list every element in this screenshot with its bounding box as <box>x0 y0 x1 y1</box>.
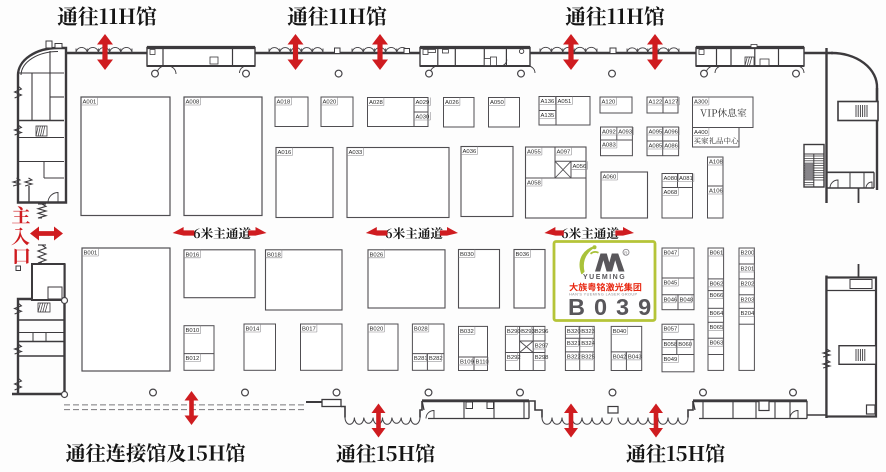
svg-text:B014: B014 <box>246 327 260 333</box>
svg-text:A127: A127 <box>665 100 679 106</box>
svg-text:B292: B292 <box>507 355 521 361</box>
svg-text:B012: B012 <box>186 356 200 362</box>
svg-text:B110: B110 <box>476 360 490 366</box>
svg-text:B057: B057 <box>664 327 678 333</box>
svg-text:A108: A108 <box>709 160 723 166</box>
svg-text:B010: B010 <box>186 328 200 334</box>
svg-text:B001: B001 <box>84 251 98 257</box>
svg-text:B063: B063 <box>710 341 724 347</box>
svg-text:B201: B201 <box>741 267 755 273</box>
svg-text:A001: A001 <box>83 100 97 106</box>
svg-text:A096: A096 <box>664 130 678 136</box>
svg-text:B028: B028 <box>414 327 428 333</box>
svg-text:B296: B296 <box>535 329 549 335</box>
svg-text:A093: A093 <box>618 130 632 136</box>
svg-text:A081: A081 <box>679 176 693 182</box>
svg-text:A092: A092 <box>602 130 616 136</box>
svg-text:B324: B324 <box>581 341 595 347</box>
svg-text:B045: B045 <box>664 281 678 287</box>
svg-text:B204: B204 <box>741 311 755 317</box>
svg-text:A300: A300 <box>694 100 708 106</box>
svg-text:A106: A106 <box>709 189 723 195</box>
svg-text:A058: A058 <box>527 181 541 187</box>
svg-text:B281: B281 <box>414 356 428 362</box>
svg-text:B323: B323 <box>581 329 595 335</box>
svg-text:A056: A056 <box>573 164 587 170</box>
svg-text:A028: A028 <box>369 100 383 106</box>
svg-text:B032: B032 <box>460 329 474 335</box>
svg-text:B017: B017 <box>302 327 316 333</box>
svg-text:B039: B039 <box>568 294 660 320</box>
svg-text:A122: A122 <box>649 100 663 106</box>
svg-text:A120: A120 <box>602 100 616 106</box>
svg-text:A055: A055 <box>527 150 541 156</box>
svg-text:B049: B049 <box>664 357 678 363</box>
svg-text:B282: B282 <box>429 356 443 362</box>
svg-text:B293: B293 <box>521 329 535 335</box>
svg-text:B018: B018 <box>267 252 281 258</box>
svg-text:B030: B030 <box>460 252 474 258</box>
svg-text:B203: B203 <box>741 297 755 303</box>
svg-text:B320: B320 <box>567 329 581 335</box>
svg-text:A085: A085 <box>649 144 663 150</box>
svg-text:A051: A051 <box>558 99 572 105</box>
svg-text:B065: B065 <box>710 325 724 331</box>
svg-text:B066: B066 <box>710 293 724 299</box>
svg-text:B016: B016 <box>186 252 200 258</box>
svg-text:B109: B109 <box>460 360 474 366</box>
svg-text:B026: B026 <box>370 252 384 258</box>
svg-text:B040: B040 <box>613 329 627 335</box>
svg-text:A080: A080 <box>664 176 678 182</box>
svg-text:A029: A029 <box>416 100 430 106</box>
svg-text:B047: B047 <box>664 251 678 257</box>
svg-text:B200: B200 <box>741 251 755 257</box>
svg-text:A036: A036 <box>463 149 477 155</box>
svg-text:B202: B202 <box>741 281 755 287</box>
svg-text:B064: B064 <box>710 311 724 317</box>
svg-text:YUEMING: YUEMING <box>583 274 626 281</box>
svg-text:B062: B062 <box>710 281 724 287</box>
svg-text:B298: B298 <box>535 355 549 361</box>
svg-text:B290: B290 <box>507 329 521 335</box>
svg-text:B061: B061 <box>710 251 724 257</box>
svg-text:B042: B042 <box>613 354 627 360</box>
svg-text:A400: A400 <box>694 130 708 136</box>
svg-text:A030: A030 <box>416 115 430 121</box>
svg-text:A033: A033 <box>349 150 363 156</box>
svg-text:A068: A068 <box>664 190 678 196</box>
svg-text:B325: B325 <box>581 354 595 360</box>
svg-text:A135: A135 <box>541 113 555 119</box>
svg-text:A018: A018 <box>277 100 291 106</box>
svg-text:A026: A026 <box>445 100 459 106</box>
svg-text:A095: A095 <box>649 130 663 136</box>
svg-text:A008: A008 <box>186 100 200 106</box>
svg-text:A016: A016 <box>278 150 292 156</box>
svg-text:B036: B036 <box>516 252 530 258</box>
svg-text:B297: B297 <box>535 344 549 350</box>
svg-text:B020: B020 <box>370 327 384 333</box>
svg-text:A050: A050 <box>490 100 504 106</box>
svg-text:A086: A086 <box>664 144 678 150</box>
svg-text:A060: A060 <box>603 175 617 181</box>
svg-text:A083: A083 <box>602 143 616 149</box>
svg-text:A020: A020 <box>323 100 337 106</box>
svg-text:A136: A136 <box>541 99 555 105</box>
svg-text:A097: A097 <box>557 150 571 156</box>
